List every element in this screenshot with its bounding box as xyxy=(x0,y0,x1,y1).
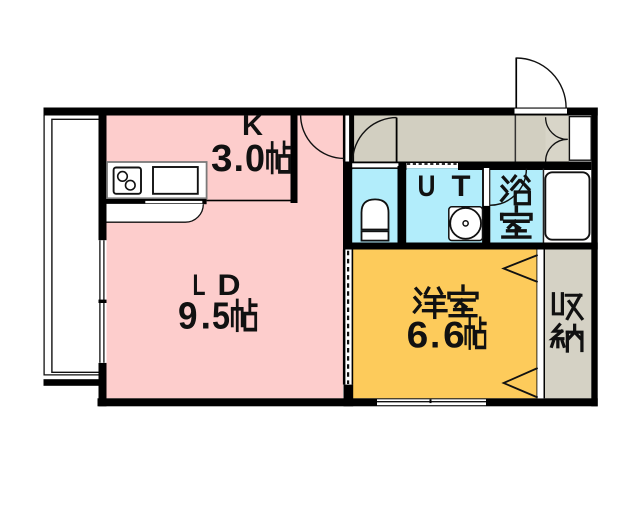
svg-text:6: 6 xyxy=(443,314,465,355)
svg-text:0: 0 xyxy=(245,138,265,180)
svg-text:U: U xyxy=(418,170,436,203)
svg-text:.: . xyxy=(201,295,212,337)
svg-text:5: 5 xyxy=(212,295,230,337)
svg-text:.: . xyxy=(234,138,245,180)
svg-text:6: 6 xyxy=(407,314,429,355)
svg-text:9: 9 xyxy=(178,295,198,337)
svg-text:T: T xyxy=(452,170,471,203)
svg-text:.: . xyxy=(430,314,440,355)
svg-text:3: 3 xyxy=(211,138,233,180)
